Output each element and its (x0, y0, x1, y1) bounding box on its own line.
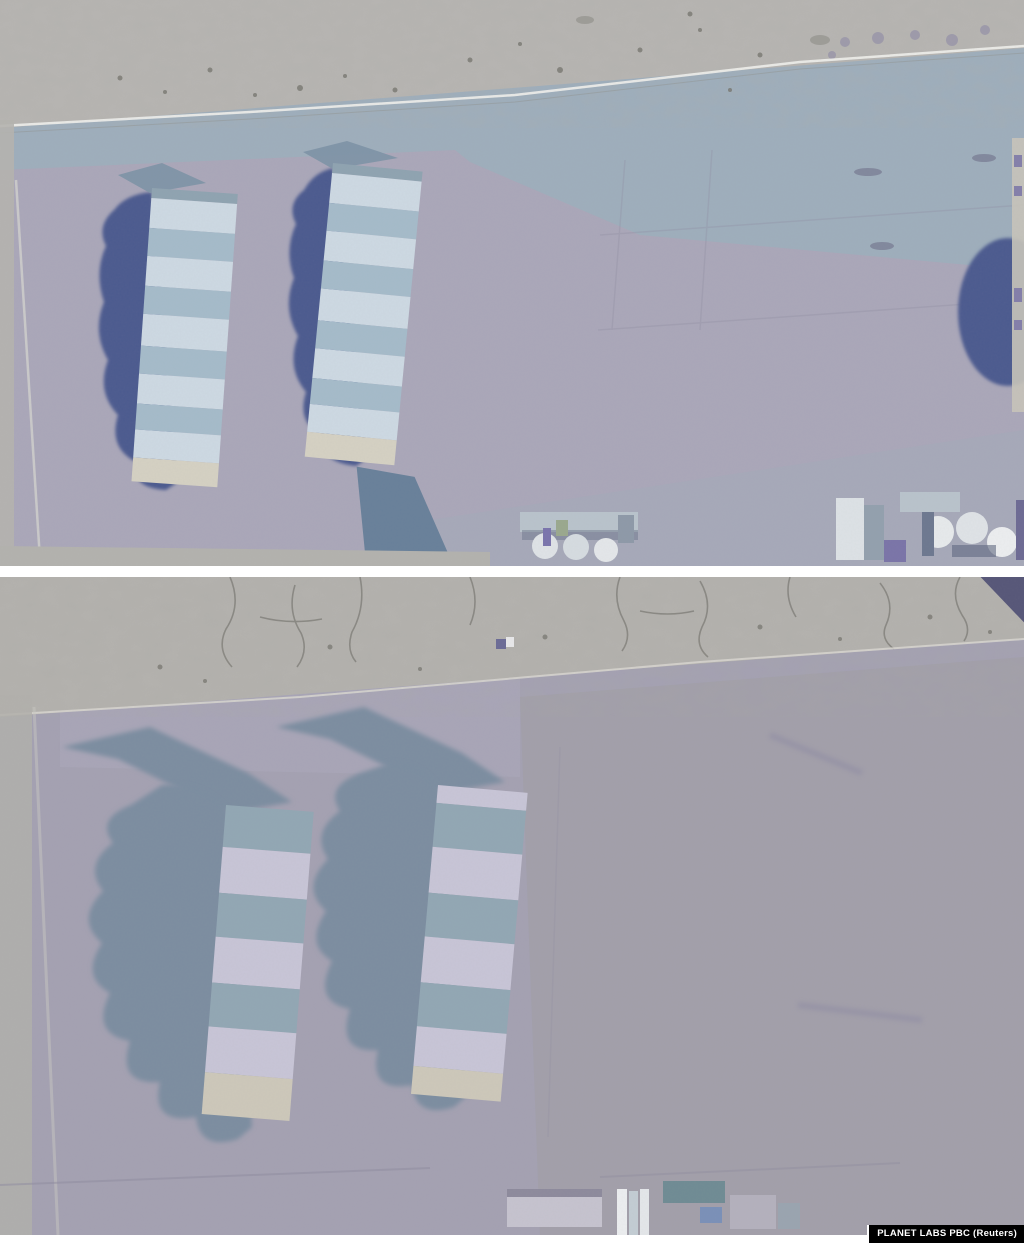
satellite-photo-top (0, 0, 1024, 566)
satellite-photo-top-svg (0, 0, 1024, 566)
satellite-comparison: PLANET LABS PBC (Reuters) (0, 0, 1024, 1243)
photo-grain (0, 577, 1024, 1235)
credit-badge: PLANET LABS PBC (Reuters) (867, 1225, 1024, 1243)
photo-grain (0, 0, 1024, 566)
satellite-photo-bottom (0, 577, 1024, 1235)
satellite-photo-bottom-svg (0, 577, 1024, 1235)
panel-divider (0, 566, 1024, 577)
